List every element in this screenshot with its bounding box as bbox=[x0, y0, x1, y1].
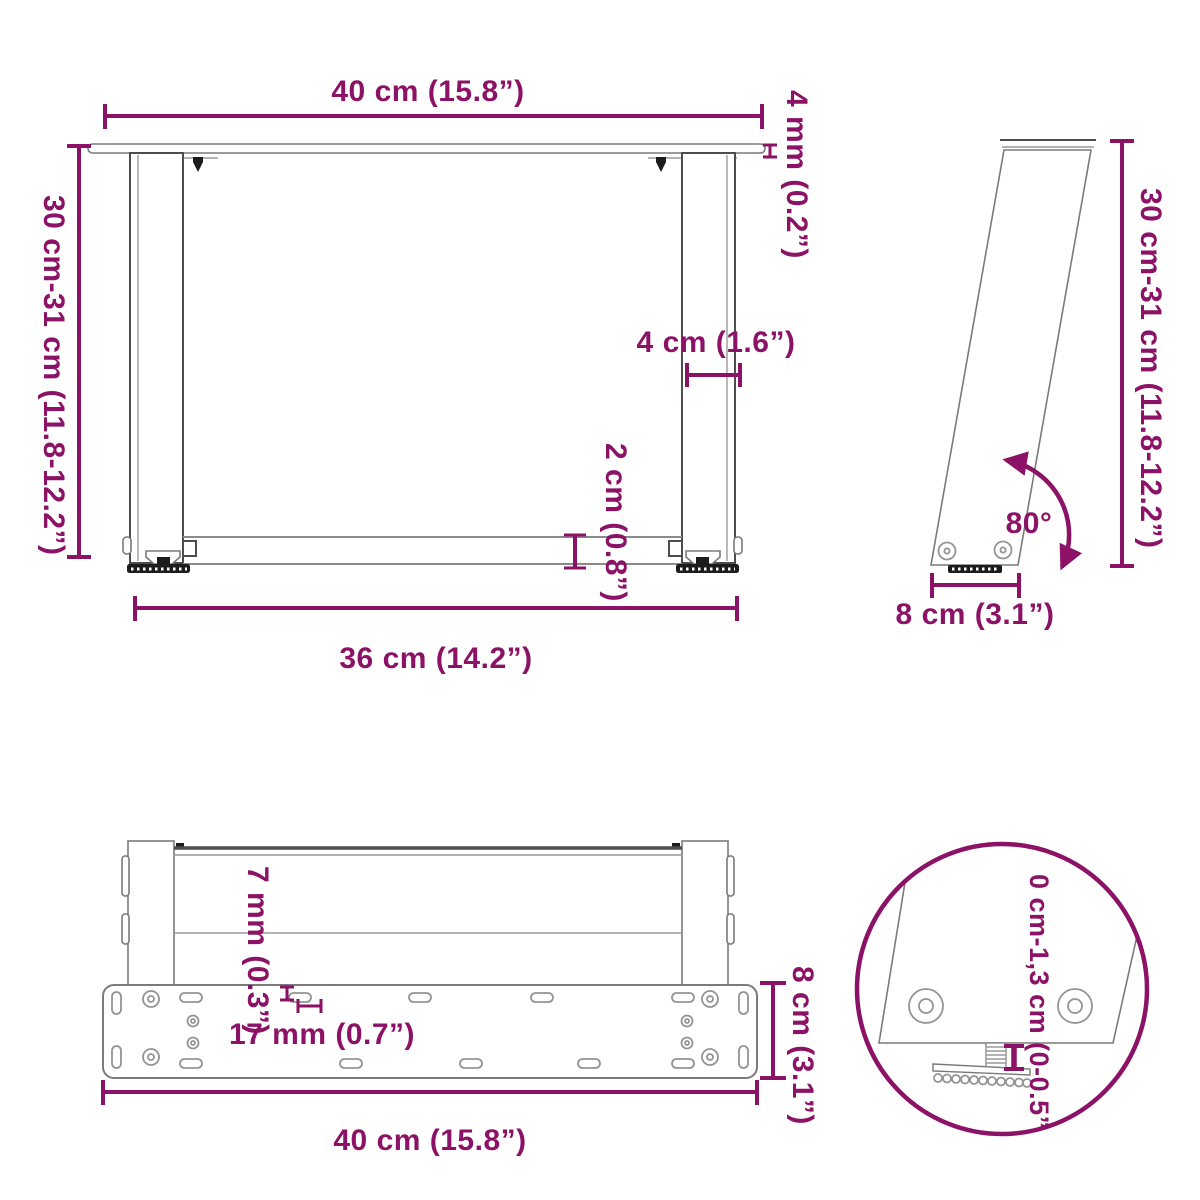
bottom-plate-depth-label: 8 cm (3.1”) bbox=[786, 966, 819, 1125]
detail-content: 0 cm-1,3 cm (0-0.5”) bbox=[879, 864, 1141, 1139]
front-crossbar-dimension: 2 cm (0.8”) bbox=[564, 443, 632, 602]
front-width-bottom-dimension: 36 cm (14.2”) bbox=[135, 596, 737, 675]
front-width-top-dimension: 40 cm (15.8”) bbox=[105, 75, 762, 129]
side-height-dimension: 30 cm-31 cm (11.8-12.2”) bbox=[1110, 141, 1167, 566]
bottom-width-dimension: 40 cm (15.8”) bbox=[103, 1080, 757, 1157]
bottom-hole-offset-label: 17 mm (0.7”) bbox=[229, 1018, 415, 1051]
screw-icon bbox=[656, 157, 666, 172]
side-depth-dimension: 8 cm (3.1”) bbox=[896, 573, 1055, 631]
bottom-right-leg bbox=[672, 841, 734, 985]
detail-view: 0 cm-1,3 cm (0-0.5”) bbox=[857, 844, 1147, 1139]
bottom-width-label: 40 cm (15.8”) bbox=[333, 1124, 526, 1157]
bottom-view: 7 mm (0.3”) 17 mm (0.7”) 8 cm (3.1”) 40 … bbox=[103, 841, 819, 1157]
side-tab bbox=[734, 537, 742, 554]
side-foot bbox=[948, 565, 1002, 573]
diagram-svg: 40 cm (15.8”) 4 mm (0.2”) 30 cm-31 cm (1… bbox=[0, 0, 1200, 1200]
front-crossbar-label: 2 cm (0.8”) bbox=[599, 443, 632, 602]
angle-label: 80° bbox=[1006, 507, 1053, 540]
bottom-left-leg bbox=[122, 841, 184, 985]
screw-icon bbox=[193, 157, 203, 172]
top-plate bbox=[88, 144, 765, 153]
side-leg bbox=[931, 150, 1091, 565]
detail-range-label: 0 cm-1,3 cm (0-0.5”) bbox=[1024, 874, 1054, 1139]
table-leg-dimension-diagram: 40 cm (15.8”) 4 mm (0.2”) 30 cm-31 cm (1… bbox=[0, 0, 1200, 1200]
front-width-bottom-label: 36 cm (14.2”) bbox=[339, 642, 532, 675]
front-plate-thickness-label: 4 mm (0.2”) bbox=[780, 90, 813, 259]
side-view: 80° 30 cm-31 cm (11.8-12.2”) 8 cm (3.1”) bbox=[896, 140, 1167, 631]
front-height-dimension: 30 cm-31 cm (11.8-12.2”) bbox=[37, 146, 91, 557]
detail-adjust-dimension bbox=[1004, 1046, 1024, 1069]
front-plate-thickness-dimension: 4 mm (0.2”) bbox=[763, 90, 813, 259]
front-leg-width-label: 4 cm (1.6”) bbox=[637, 326, 796, 359]
side-tab bbox=[123, 537, 131, 554]
front-height-label: 30 cm-31 cm (11.8-12.2”) bbox=[37, 195, 70, 556]
bottom-plate-depth-dimension: 8 cm (3.1”) bbox=[760, 966, 819, 1125]
front-width-top-label: 40 cm (15.8”) bbox=[331, 75, 524, 108]
front-view: 40 cm (15.8”) 4 mm (0.2”) 30 cm-31 cm (1… bbox=[37, 75, 813, 675]
side-height-label: 30 cm-31 cm (11.8-12.2”) bbox=[1134, 188, 1167, 549]
bottom-plate-thickness-label: 7 mm (0.3”) bbox=[241, 866, 274, 1035]
side-depth-label: 8 cm (3.1”) bbox=[896, 598, 1055, 631]
threaded-stem bbox=[986, 1043, 1006, 1068]
left-leg bbox=[130, 153, 183, 563]
mounting-plate bbox=[103, 985, 757, 1078]
